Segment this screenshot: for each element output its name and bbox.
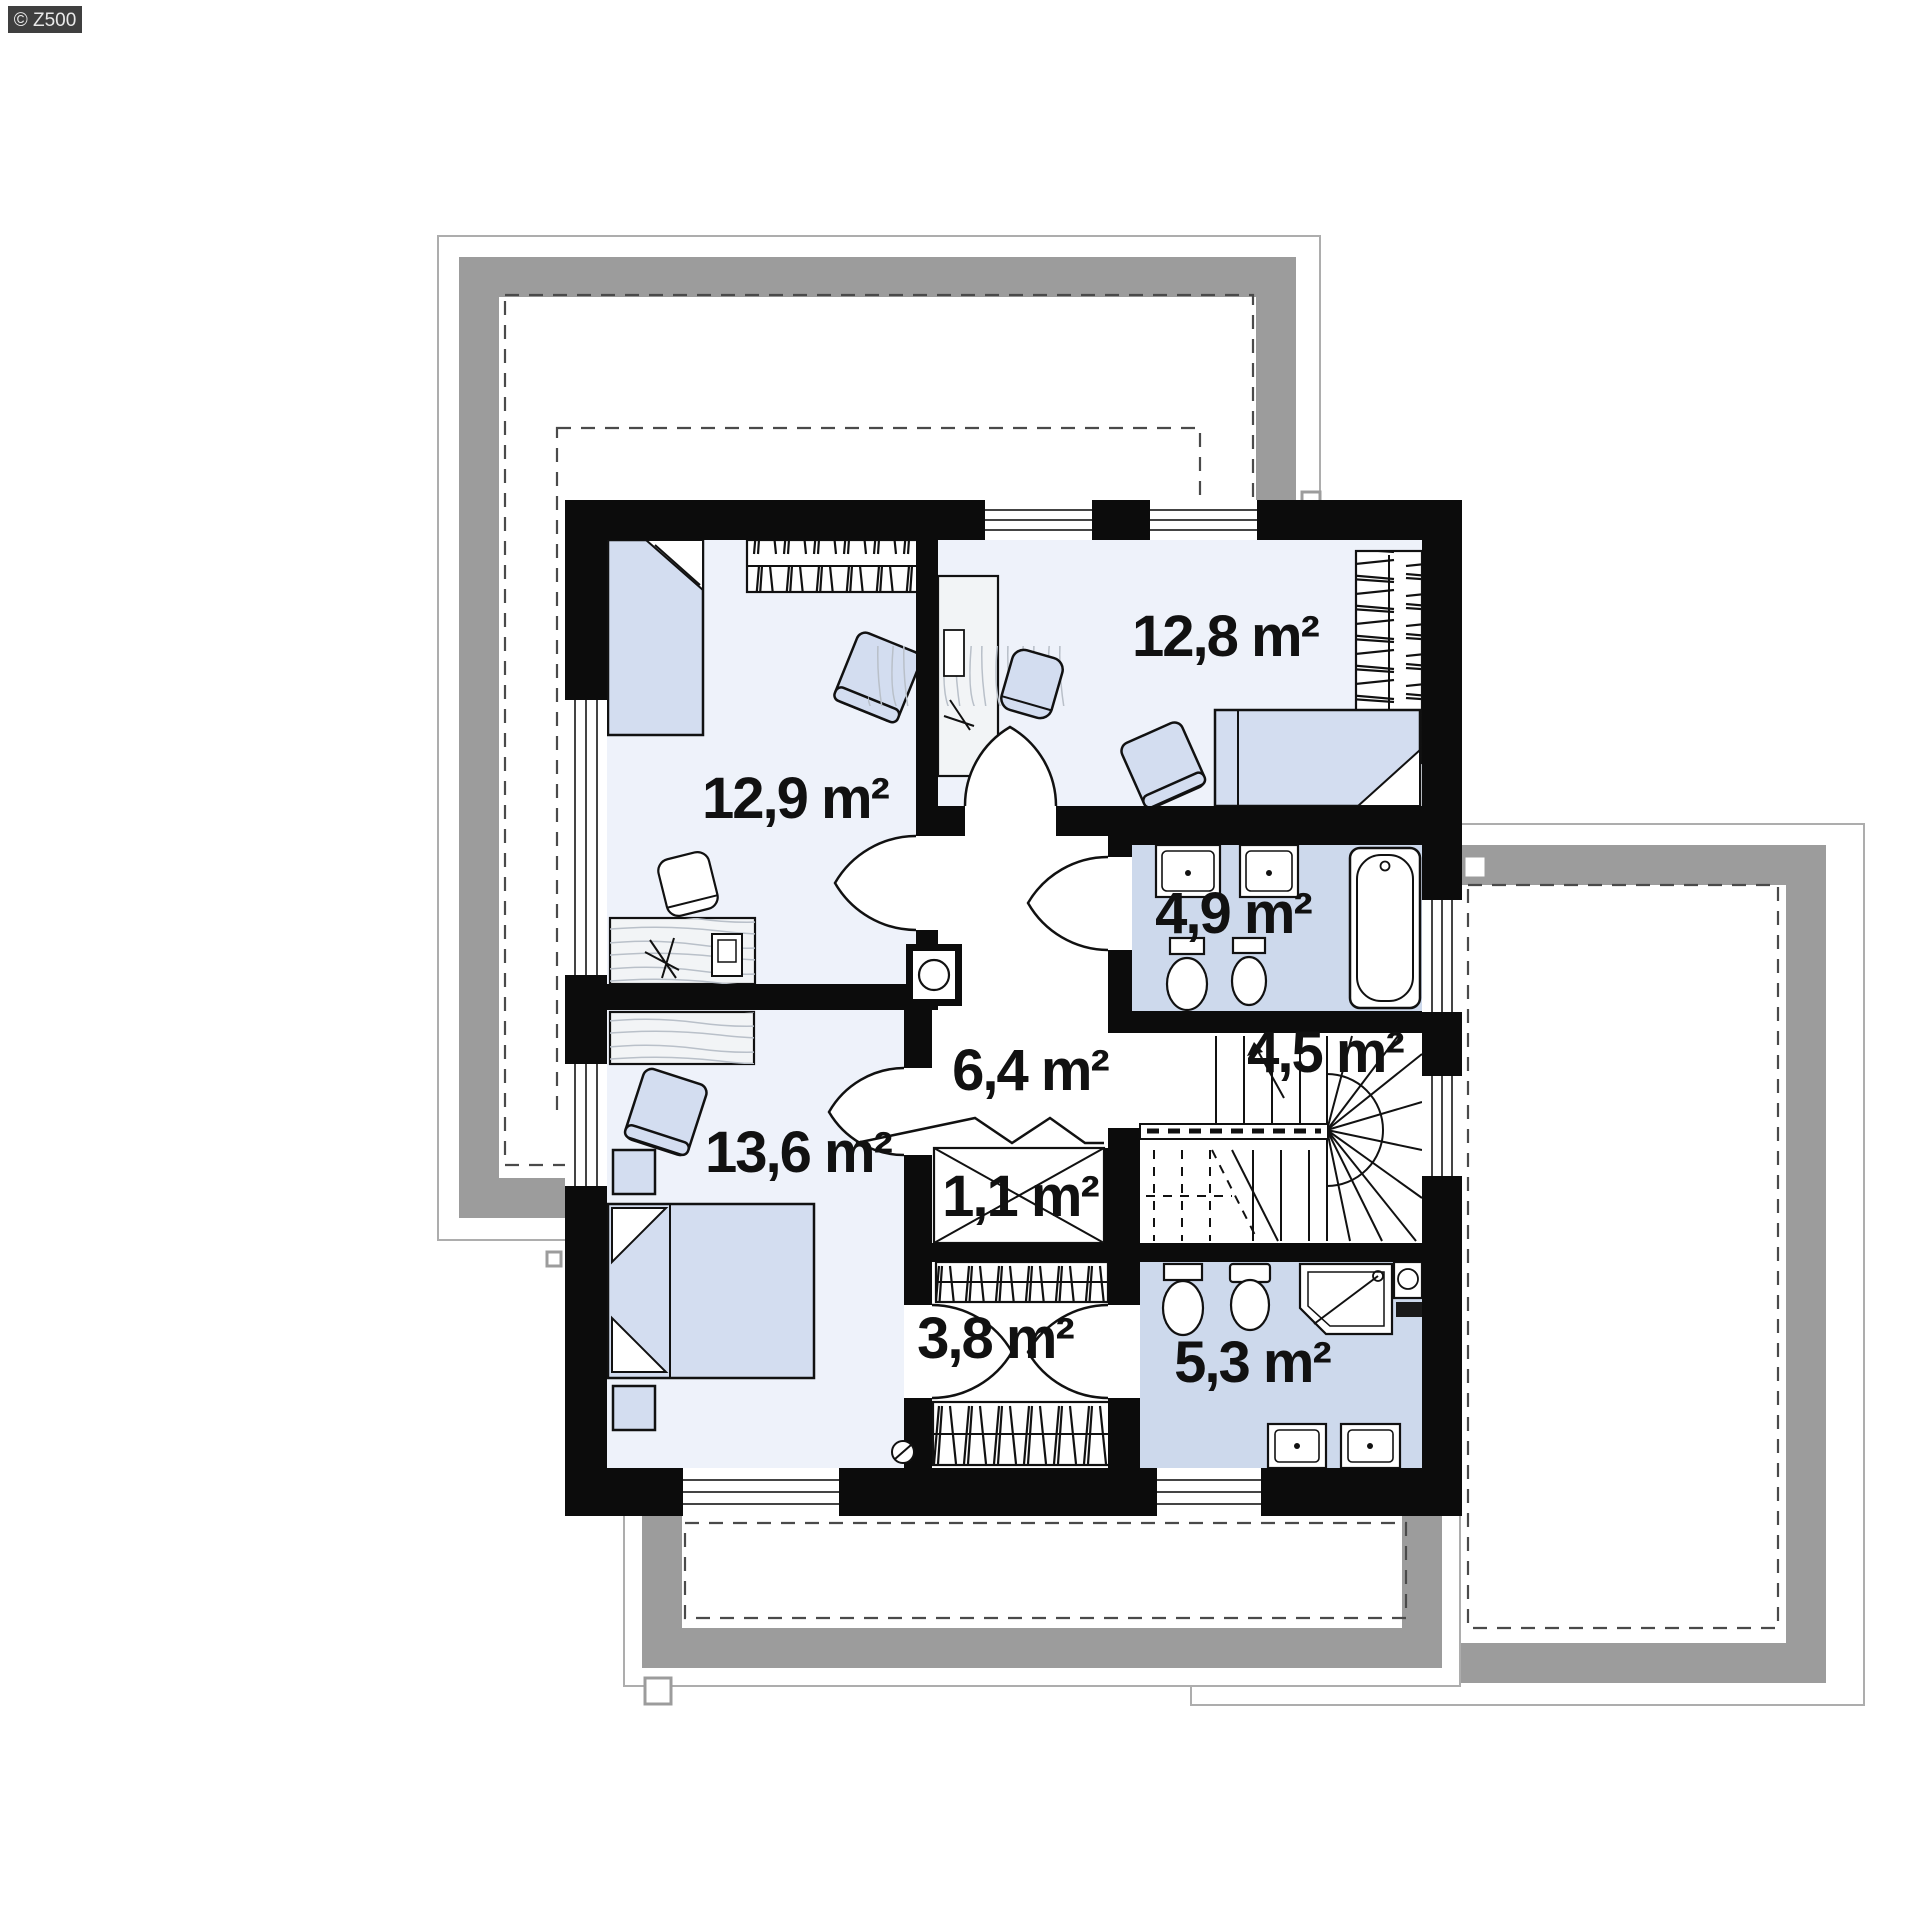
sink-icon	[1341, 1424, 1400, 1468]
desk-symbol	[610, 1012, 754, 1064]
wardrobe-symbol	[933, 1402, 1113, 1465]
nightstand-symbol	[613, 1150, 655, 1194]
roof-corner-marker	[547, 1252, 561, 1266]
sink-icon	[1268, 1424, 1326, 1468]
room-area-label: 12,8 m²	[1132, 604, 1320, 669]
room-area-label: 12,9 m²	[702, 766, 890, 831]
room-area-label: 13,6 m²	[705, 1120, 893, 1185]
shower-icon	[1300, 1264, 1392, 1334]
nightstand-symbol	[613, 1386, 655, 1430]
window-symbol	[985, 500, 1092, 540]
handrail-symbol	[1140, 1124, 1328, 1139]
window-symbol	[565, 700, 607, 975]
drain-symbol	[892, 1441, 914, 1463]
toilet-icon	[1167, 938, 1207, 1010]
toilet-icon	[1230, 1264, 1270, 1330]
window-symbol	[1422, 900, 1462, 1012]
chimney-symbol	[906, 944, 962, 1006]
room-area-label: 1,1 m²	[942, 1164, 1099, 1229]
window-symbol	[683, 1468, 839, 1516]
window-symbol	[1157, 1468, 1261, 1516]
desk-symbol	[610, 918, 755, 984]
roof-corner-marker	[1464, 856, 1486, 878]
roof-corner-marker	[645, 1678, 671, 1704]
watermark: © Z500	[8, 6, 82, 33]
window-symbol	[1422, 1076, 1462, 1176]
room-area-label: 6,4 m²	[952, 1038, 1109, 1103]
window-symbol	[565, 1064, 607, 1186]
room-area-label: 5,3 m²	[1174, 1330, 1331, 1395]
window-symbol	[1150, 500, 1257, 540]
wardrobe-symbol	[936, 1262, 1108, 1302]
room-area-label: 3,8 m²	[917, 1306, 1074, 1371]
toilet-icon	[1163, 1264, 1203, 1335]
room-area-label: 4,9 m²	[1155, 881, 1312, 946]
sink-icon	[1394, 1262, 1422, 1317]
wardrobe-symbol	[747, 540, 918, 592]
single-bed-symbol	[1215, 710, 1420, 806]
room-area-label: 4,5 m²	[1247, 1020, 1404, 1085]
floor-plan-page: 12,9 m² 12,8 m² 4,9 m² 6,4 m² 4,5 m² 1,1…	[0, 0, 1920, 1920]
floor-plan-drawing: 12,9 m² 12,8 m² 4,9 m² 6,4 m² 4,5 m² 1,1…	[0, 0, 1920, 1920]
watermark-label: © Z500	[14, 10, 77, 31]
single-bed-symbol	[608, 540, 703, 735]
bathtub-icon	[1350, 848, 1420, 1008]
bidet-icon	[1232, 938, 1266, 1005]
double-bed-symbol	[608, 1204, 814, 1378]
